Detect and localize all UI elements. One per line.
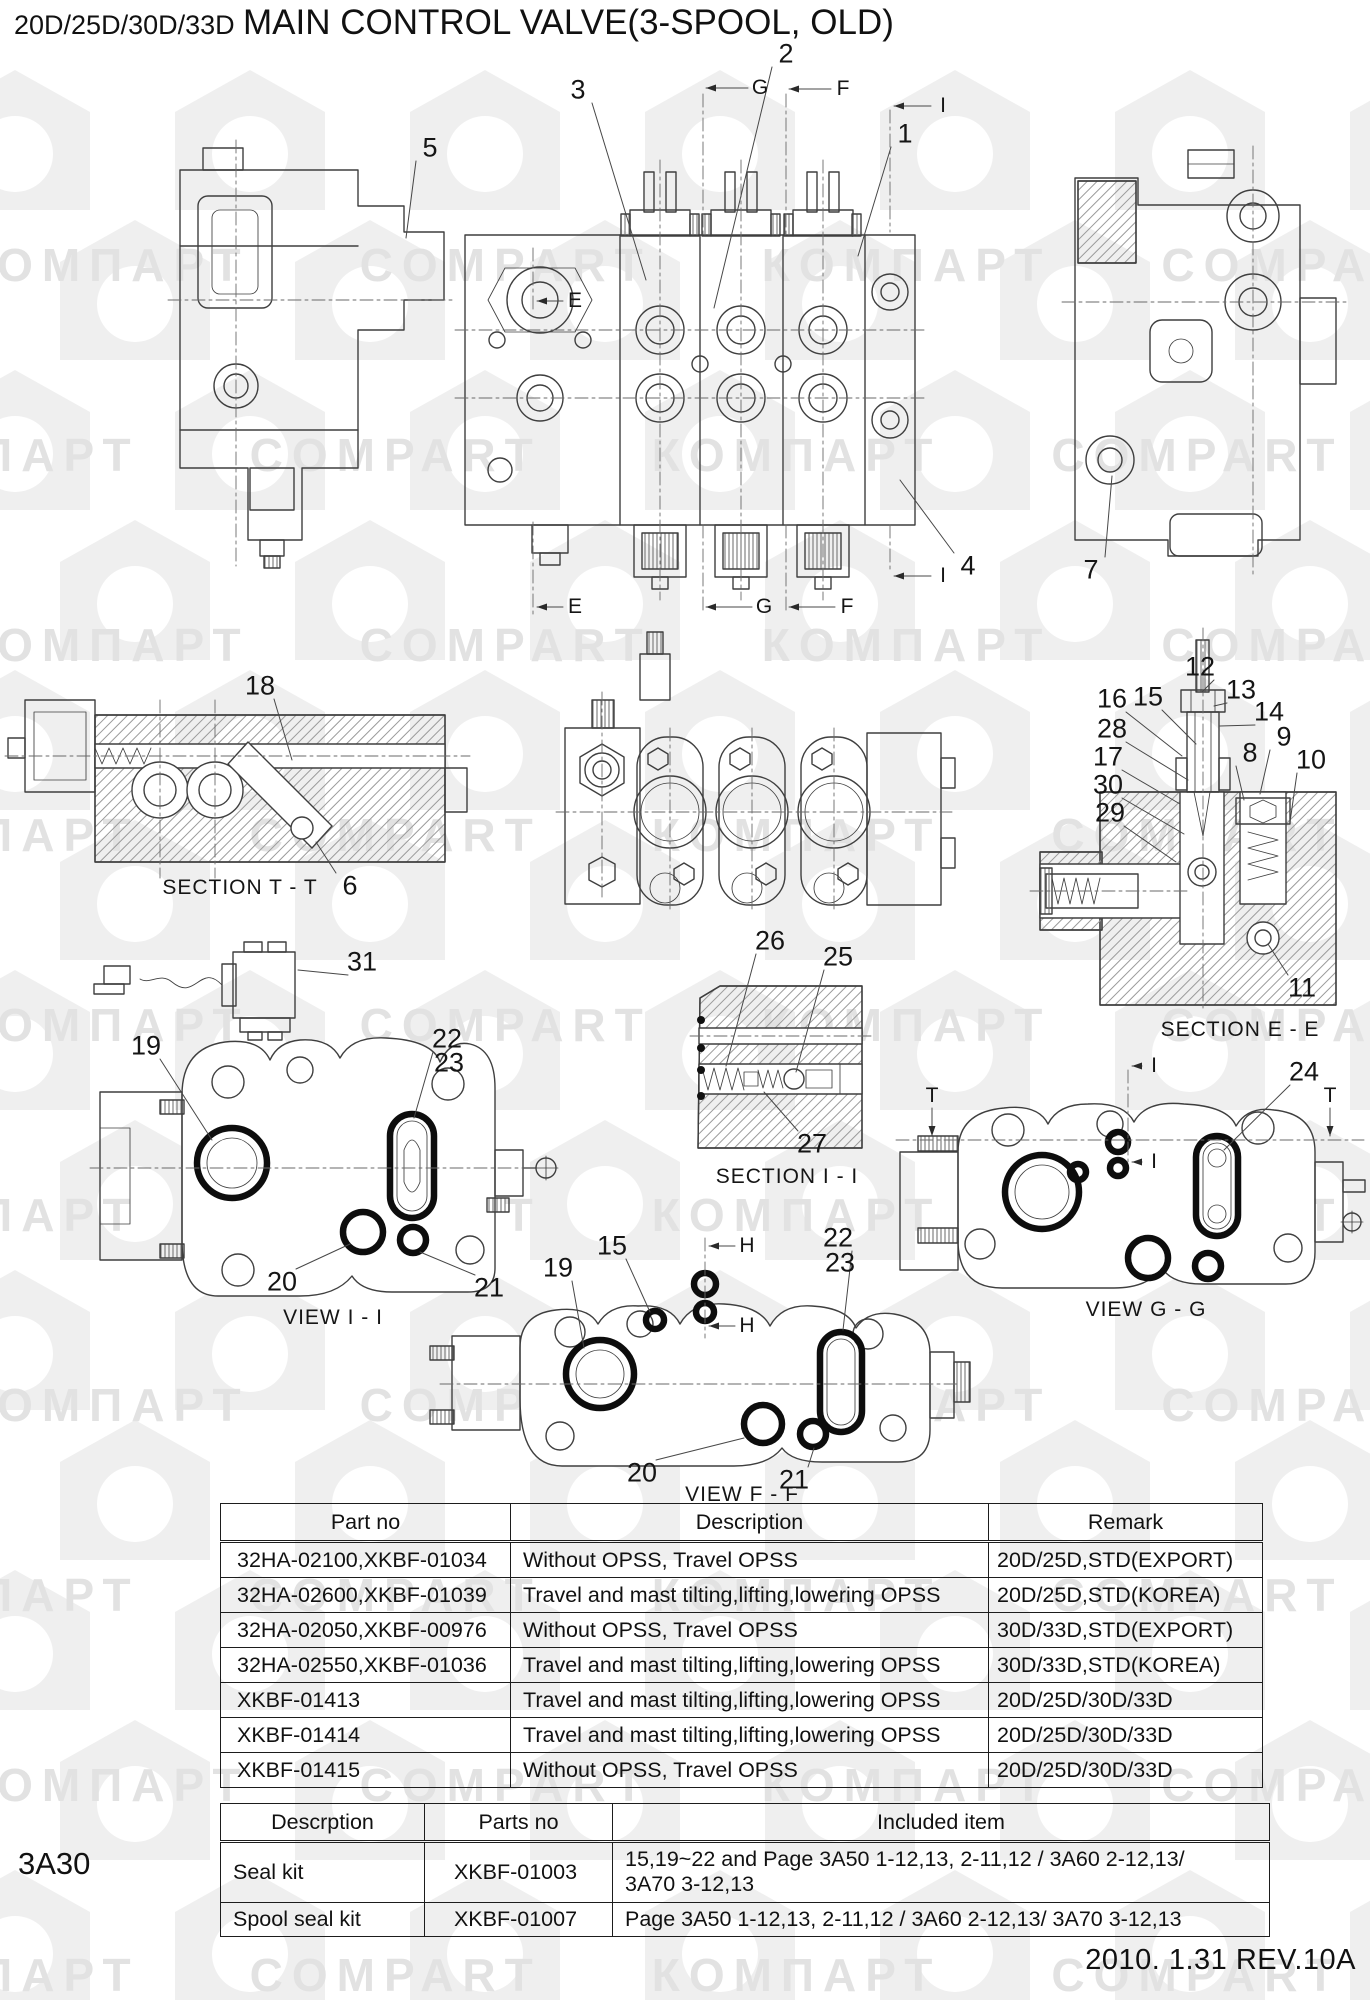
- part-row: XKBF-01415Without OPSS, Travel OPSS20D/2…: [221, 1753, 1263, 1788]
- table-cell: 32HA-02600,XKBF-01039: [221, 1578, 511, 1613]
- table-cell: 15,19~22 and Page 3A50 1-12,13, 2-11,12 …: [613, 1842, 1270, 1903]
- part-row: XKBF-01413Travel and mast tilting,liftin…: [221, 1683, 1263, 1718]
- callout-8: 8: [1242, 738, 1257, 769]
- table-cell: 32HA-02050,XKBF-00976: [221, 1613, 511, 1648]
- part-row: 32HA-02600,XKBF-01039Travel and mast til…: [221, 1578, 1263, 1613]
- callout-17: 17: [1093, 742, 1123, 773]
- callout-1: 1: [897, 119, 912, 150]
- callout-5: 5: [422, 133, 437, 164]
- callout-7: 7: [1083, 555, 1098, 586]
- callout-19: 19: [543, 1253, 573, 1284]
- part-row: 32HA-02100,XKBF-01034Without OPSS, Trave…: [221, 1542, 1263, 1578]
- dimension-letter-F: F: [841, 595, 854, 619]
- callout-12: 12: [1185, 652, 1215, 683]
- dimension-letter-H: H: [739, 1234, 754, 1258]
- callout-15: 15: [1133, 682, 1163, 713]
- callout-2: 2: [778, 39, 793, 70]
- callout-16: 16: [1097, 684, 1127, 715]
- column-header: Remark: [989, 1504, 1263, 1542]
- table-cell: Travel and mast tilting,lifting,lowering…: [511, 1718, 989, 1753]
- table-cell: Travel and mast tilting,lifting,lowering…: [511, 1578, 989, 1613]
- callout-15: 15: [597, 1231, 627, 1262]
- dimension-letter-F: F: [837, 77, 850, 101]
- table-cell: XKBF-01413: [221, 1683, 511, 1718]
- callout-10: 10: [1296, 745, 1326, 776]
- table-cell: Page 3A50 1-12,13, 2-11,12 / 3A60 2-12,1…: [613, 1902, 1270, 1936]
- column-header: Parts no: [425, 1804, 613, 1842]
- kit-row: Spool seal kitXKBF-01007Page 3A50 1-12,1…: [221, 1902, 1270, 1936]
- dimension-letter-I: I: [1151, 1054, 1157, 1078]
- table-cell: XKBF-01414: [221, 1718, 511, 1753]
- dimension-letter-E: E: [568, 595, 582, 619]
- table-cell: Without OPSS, Travel OPSS: [511, 1613, 989, 1648]
- callout-14: 14: [1254, 697, 1284, 728]
- callout-29: 29: [1095, 798, 1125, 829]
- dimension-letter-E: E: [568, 289, 582, 313]
- callout-20: 20: [267, 1267, 297, 1298]
- callout-4: 4: [960, 551, 975, 582]
- table-cell: 20D/25D,STD(EXPORT): [989, 1542, 1263, 1578]
- callout-20: 20: [627, 1458, 657, 1489]
- dimension-letter-I: I: [940, 94, 946, 118]
- table-cell: 20D/25D/30D/33D: [989, 1718, 1263, 1753]
- callout-25: 25: [823, 942, 853, 973]
- dimension-letter-H: H: [739, 1314, 754, 1338]
- part-row: XKBF-01414Travel and mast tilting,liftin…: [221, 1718, 1263, 1753]
- parts-table: Part noDescriptionRemark32HA-02100,XKBF-…: [220, 1503, 1263, 1788]
- section-view-label: VIEW I - I: [283, 1306, 383, 1330]
- part-row: 32HA-02550,XKBF-01036Travel and mast til…: [221, 1648, 1263, 1683]
- section-view-label: VIEW G - G: [1086, 1298, 1207, 1322]
- column-header: Part no: [221, 1504, 511, 1542]
- table-cell: 20D/25D,STD(KOREA): [989, 1578, 1263, 1613]
- dimension-letter-T: T: [1324, 1084, 1337, 1108]
- dimension-letter-I: I: [940, 564, 946, 588]
- callout-26: 26: [755, 926, 785, 957]
- section-view-label: SECTION T - T: [162, 876, 317, 900]
- callout-18: 18: [245, 671, 275, 702]
- callout-13: 13: [1226, 675, 1256, 706]
- dimension-letter-G: G: [752, 76, 768, 100]
- section-view-label: SECTION E - E: [1161, 1018, 1320, 1042]
- kit-row: Seal kitXKBF-0100315,19~22 and Page 3A50…: [221, 1842, 1270, 1903]
- callout-28: 28: [1097, 714, 1127, 745]
- column-header: Included item: [613, 1804, 1270, 1842]
- callout-27: 27: [797, 1129, 827, 1160]
- table-cell: Travel and mast tilting,lifting,lowering…: [511, 1648, 989, 1683]
- table-cell: 20D/25D/30D/33D: [989, 1753, 1263, 1788]
- section-view-label: SECTION I - I: [716, 1165, 859, 1189]
- callout-11: 11: [1288, 973, 1316, 1004]
- callout-6: 6: [342, 871, 357, 902]
- page-code: 3A30: [18, 1846, 90, 1882]
- table-cell: 32HA-02100,XKBF-01034: [221, 1542, 511, 1578]
- table-cell: Without OPSS, Travel OPSS: [511, 1753, 989, 1788]
- callout-30: 30: [1093, 770, 1123, 801]
- table-cell: Seal kit: [221, 1842, 425, 1903]
- callout-23: 23: [825, 1248, 855, 1279]
- revision-date: 2010. 1.31 REV.10A: [1085, 1944, 1356, 1977]
- column-header: Description: [511, 1504, 989, 1542]
- parts-catalog-page: КОМПАРТ COMPART КОМПАРТ COMPART КОМПАРТ …: [0, 0, 1370, 2000]
- table-cell: 30D/33D,STD(KOREA): [989, 1648, 1263, 1683]
- callout-19: 19: [131, 1031, 161, 1062]
- part-row: 32HA-02050,XKBF-00976Without OPSS, Trave…: [221, 1613, 1263, 1648]
- table-cell: XKBF-01007: [425, 1902, 613, 1936]
- table-cell: 32HA-02550,XKBF-01036: [221, 1648, 511, 1683]
- page-title: MAIN CONTROL VALVE(3-SPOOL, OLD): [243, 3, 894, 43]
- dimension-letter-T: T: [926, 1084, 939, 1108]
- table-cell: XKBF-01003: [425, 1842, 613, 1903]
- table-cell: Travel and mast tilting,lifting,lowering…: [511, 1683, 989, 1718]
- dimension-letter-I: I: [1151, 1150, 1157, 1174]
- callout-31: 31: [347, 947, 377, 978]
- callout-3: 3: [570, 75, 585, 106]
- callout-21: 21: [474, 1273, 504, 1304]
- table-cell: Without OPSS, Travel OPSS: [511, 1542, 989, 1578]
- table-cell: 20D/25D/30D/33D: [989, 1683, 1263, 1718]
- dimension-letter-G: G: [756, 595, 772, 619]
- table-cell: XKBF-01415: [221, 1753, 511, 1788]
- table-cell: 30D/33D,STD(EXPORT): [989, 1613, 1263, 1648]
- model-label: 20D/25D/30D/33D: [14, 10, 235, 41]
- callout-24: 24: [1289, 1057, 1319, 1088]
- callout-23: 23: [434, 1048, 464, 1079]
- table-cell: Spool seal kit: [221, 1902, 425, 1936]
- column-header: Descrption: [221, 1804, 425, 1842]
- seal-kits-table: DescrptionParts noIncluded itemSeal kitX…: [220, 1803, 1270, 1937]
